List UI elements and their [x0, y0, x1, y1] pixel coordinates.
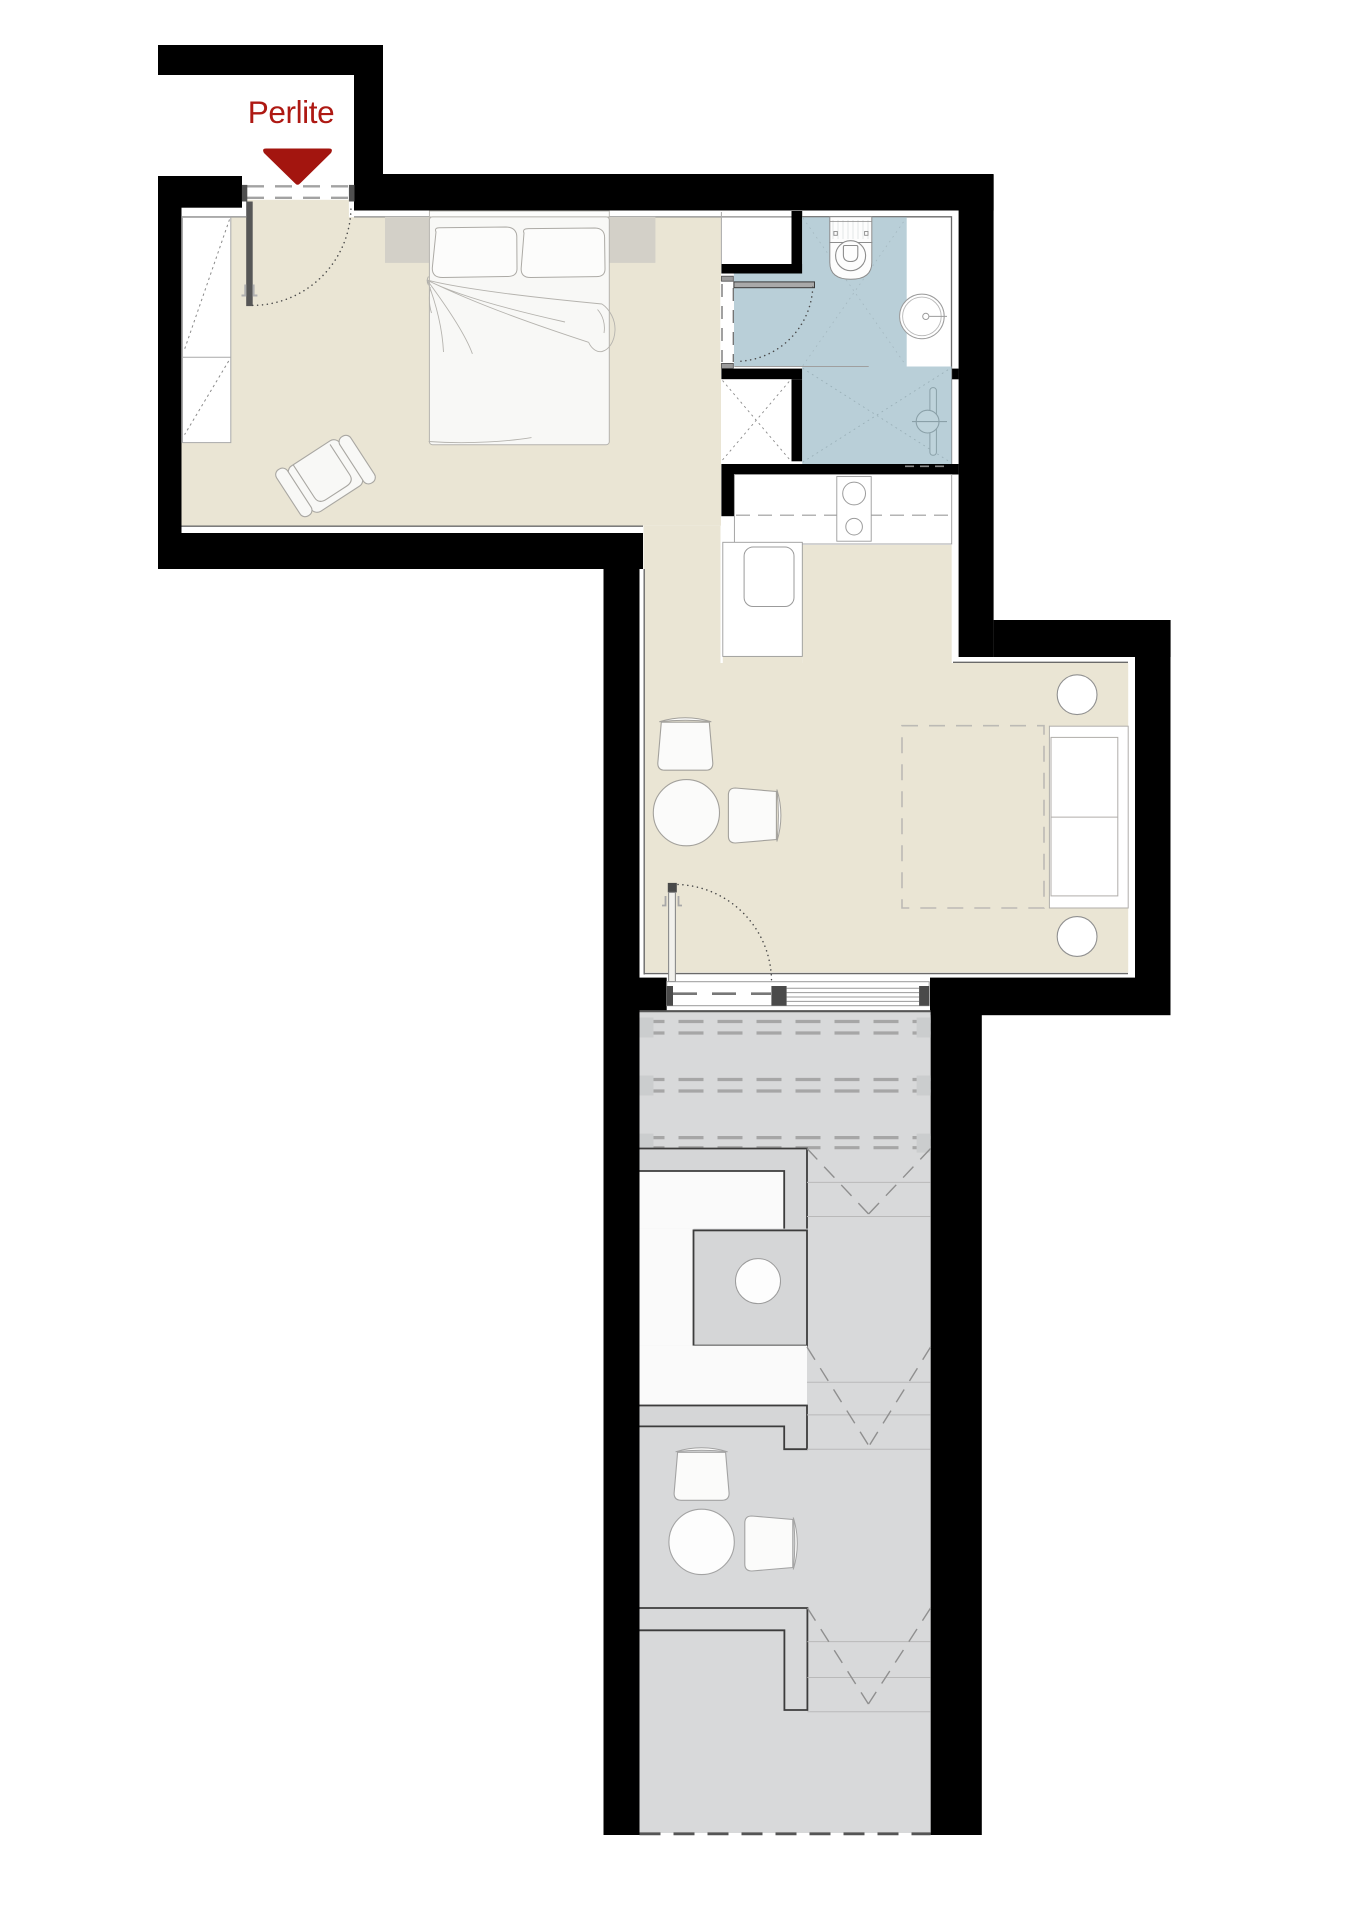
- svg-text:Perlite: Perlite: [248, 94, 335, 130]
